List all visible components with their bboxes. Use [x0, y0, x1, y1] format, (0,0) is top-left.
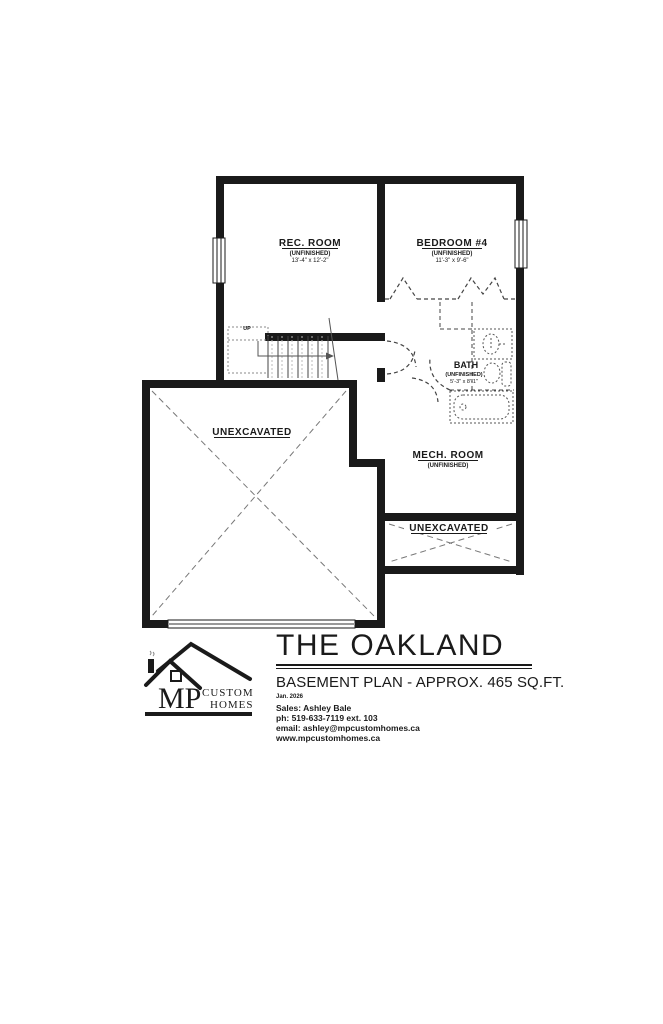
- mech-room-label: MECH. ROOM: [412, 450, 483, 461]
- unexcavated-main-hatch: [152, 391, 374, 616]
- logo-word-homes: HOMES: [210, 699, 254, 711]
- contact-info: Sales: Ashley Bale ph: 519-633-7119 ext.…: [276, 703, 544, 744]
- rec-room-label: REC. ROOM: [279, 238, 341, 249]
- title-rule-1: [276, 664, 532, 666]
- rec-room-status: (UNFINISHED): [290, 251, 331, 257]
- hall-door-swings: [387, 341, 450, 402]
- unexcavated-lower-label: UNEXCAVATED: [409, 523, 488, 534]
- plan-subtitle: BASEMENT PLAN - APPROX. 465 SQ.FT.: [276, 674, 544, 691]
- wall-room-divider: [377, 176, 385, 302]
- wall-hall-stub: [377, 368, 385, 382]
- unex-wall-left: [142, 380, 150, 628]
- bedroom4-dims: 11'-3" x 9'-6": [435, 258, 468, 264]
- plan-title: THE OAKLAND: [276, 631, 544, 662]
- logo-word-custom: CUSTOM: [202, 687, 254, 699]
- window-right: [515, 220, 527, 268]
- strip-wall-bottom: [385, 566, 524, 574]
- stair-direction-arrow: [326, 353, 334, 360]
- toilet: [474, 329, 512, 359]
- logo-initials: MP: [158, 682, 201, 715]
- unex-wall-right-upper: [349, 380, 357, 465]
- email-line: email: ashley@mpcustomhomes.ca: [276, 723, 544, 733]
- bathtub: [450, 391, 513, 423]
- unex-wall-right-lower: [377, 459, 385, 628]
- stair-break-line: [329, 318, 338, 380]
- stair-tread-shadow-lines: [272, 336, 322, 378]
- mech-door-swing: [412, 378, 438, 402]
- bedroom-door-swing-1: [390, 278, 417, 299]
- website-line: www.mpcustomhomes.ca: [276, 733, 544, 743]
- phone-line: ph: 519-633-7119 ext. 103: [276, 713, 544, 723]
- bath-status: (UNFINISHED): [445, 372, 482, 378]
- unex-wall-top: [142, 380, 357, 388]
- title-block: MP CUSTOM HOMES THE OAKLAND BASEMENT PLA…: [0, 631, 663, 741]
- unexcavated-main-label: UNEXCAVATED: [212, 427, 291, 438]
- mech-room-status: (UNFINISHED): [428, 463, 469, 469]
- sink-vanity: [484, 362, 511, 386]
- bedroom-partition: [385, 278, 516, 299]
- floor-plan-drawing: REC. ROOM (UNFINISHED) 13'-4" x 12'-2" B…: [0, 0, 663, 1024]
- logo-drawing: MP CUSTOM HOMES: [136, 633, 266, 729]
- bath-label: BATH: [454, 360, 478, 370]
- wall-stair-header: [265, 333, 385, 341]
- stair-landing: [228, 327, 268, 373]
- title-block-text: THE OAKLAND BASEMENT PLAN - APPROX. 465 …: [276, 631, 544, 743]
- logo-chimney: [148, 659, 154, 673]
- bath-dims: 5'-3" x 8'-1": [450, 379, 478, 385]
- sales-line: Sales: Ashley Bale: [276, 703, 544, 713]
- strip-wall-top: [385, 513, 524, 521]
- mp-custom-homes-logo: MP CUSTOM HOMES: [136, 633, 266, 729]
- bedroom-door-swing-2: [458, 278, 504, 299]
- page: REC. ROOM (UNFINISHED) 13'-4" x 12'-2" B…: [0, 0, 663, 1024]
- unexcavated-walls: [142, 380, 524, 628]
- bedroom4-status: (UNFINISHED): [432, 251, 473, 257]
- interior-walls: [265, 176, 385, 382]
- logo-window: [171, 671, 181, 681]
- rec-room-dims: 13'-4" x 12'-2": [292, 258, 329, 264]
- logo-smoke: [150, 651, 154, 656]
- logo-baseline: [145, 712, 252, 716]
- title-rule-2: [276, 668, 532, 669]
- stair-treads: [268, 336, 328, 378]
- window-bottom-band: [168, 620, 355, 628]
- wall-top: [216, 176, 524, 184]
- bedroom4-label: BEDROOM #4: [416, 238, 487, 249]
- stairs-up-label: UP: [243, 326, 251, 332]
- window-left: [213, 238, 225, 283]
- plan-date: Jan. 2026: [276, 694, 544, 700]
